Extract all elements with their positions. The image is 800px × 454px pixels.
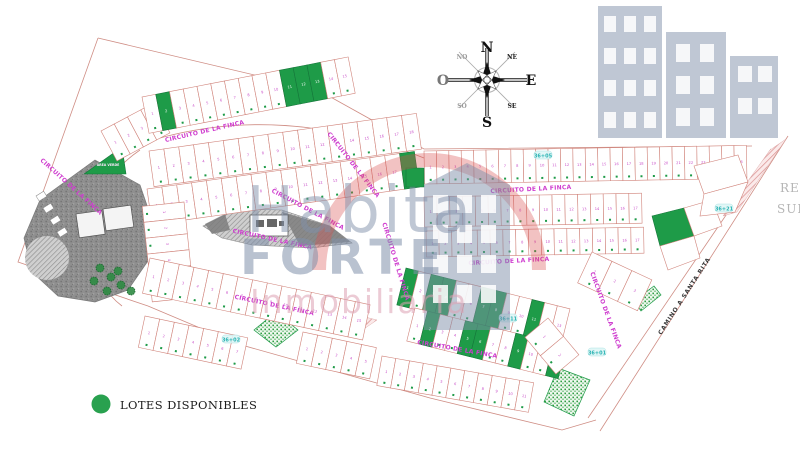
- lot-mark: [637, 248, 639, 250]
- lot-number: 11: [556, 208, 561, 212]
- lot-mark: [583, 219, 585, 221]
- lot-mark: [232, 208, 234, 210]
- lot-mark: [160, 181, 162, 183]
- lot-mark: [616, 176, 618, 178]
- lot-row: 123456789101112131415: [142, 57, 355, 133]
- lot-mark: [438, 391, 440, 393]
- compass-label-no: NO: [457, 54, 468, 61]
- lot-mark: [308, 160, 310, 162]
- lot-number: 21: [676, 161, 681, 165]
- lot-number: 12: [569, 207, 574, 211]
- lot-mark: [189, 353, 191, 355]
- lot-mark: [560, 250, 562, 252]
- lot-number: 1: [162, 211, 166, 214]
- compass-label-n: N: [481, 40, 494, 56]
- lot-number: 13: [582, 207, 587, 211]
- lot-number: 17: [627, 162, 632, 166]
- lot-number: 19: [651, 161, 656, 165]
- lot-mark: [573, 249, 575, 251]
- lot-mark: [541, 177, 543, 179]
- lot-row: 123: [578, 252, 652, 311]
- lot-number: 17: [633, 206, 638, 210]
- lot-mark: [264, 106, 266, 108]
- lot-mark: [303, 360, 305, 362]
- lot-number: 20: [664, 161, 669, 165]
- lot-mark: [516, 177, 518, 179]
- lot-mark: [494, 401, 496, 403]
- watermark-window: [644, 16, 656, 32]
- tree: [90, 277, 98, 285]
- lot-mark: [554, 177, 556, 179]
- lot-mark: [603, 176, 605, 178]
- lot-number: 11: [522, 394, 527, 399]
- watermark-window: [676, 76, 690, 94]
- lot-mark: [545, 220, 547, 222]
- lot-mark: [397, 147, 399, 149]
- lot-number: 14: [595, 207, 600, 211]
- lot-mark: [383, 149, 385, 151]
- lot-mark: [368, 151, 370, 153]
- lot-mark: [596, 219, 598, 221]
- lot-row: 12345: [296, 332, 376, 379]
- lot-mark: [233, 362, 235, 364]
- compass-label-s: S: [482, 115, 492, 131]
- lot-mark: [635, 218, 637, 220]
- lot-number: 3: [165, 243, 169, 246]
- lot-mark: [558, 220, 560, 222]
- compass-label-ne: NE: [507, 54, 517, 61]
- lot-mark: [507, 404, 509, 406]
- lot-mark: [145, 344, 147, 346]
- tree: [107, 273, 115, 281]
- station-label: 36+01: [588, 351, 607, 357]
- lot-mark: [678, 175, 680, 177]
- watermark-window: [758, 98, 772, 114]
- lot-number: 18: [639, 162, 644, 166]
- lot-mark: [585, 249, 587, 251]
- lot-number: 12: [571, 239, 576, 243]
- lot-mark: [149, 290, 151, 292]
- lot-mark: [219, 359, 221, 361]
- lot-mark: [189, 176, 191, 178]
- watermark-window: [481, 195, 496, 213]
- lot-mark: [412, 145, 414, 147]
- lot-mark: [279, 164, 281, 166]
- lot-number: 17: [394, 132, 399, 137]
- lot-mark: [204, 174, 206, 176]
- watermark-window: [700, 44, 714, 62]
- lot-mark: [397, 384, 399, 386]
- lot-mark: [160, 347, 162, 349]
- lot-mark: [690, 174, 692, 176]
- lot-number: 14: [589, 163, 594, 167]
- tree: [96, 264, 104, 272]
- watermark-window: [604, 48, 616, 64]
- lot-mark: [578, 176, 580, 178]
- station-label: 36+21: [715, 207, 734, 213]
- lot-number: 22: [689, 161, 694, 165]
- lot-mark: [466, 396, 468, 398]
- lot-mark: [238, 308, 240, 310]
- watermark-window: [644, 112, 656, 128]
- lot-mark: [353, 153, 355, 155]
- lot-mark: [340, 330, 342, 332]
- lot-mark: [323, 158, 325, 160]
- lot-number: 13: [584, 239, 589, 243]
- lot-mark: [521, 406, 523, 408]
- lot-mark: [521, 250, 523, 252]
- lot-mark: [209, 116, 211, 118]
- lot-mark: [278, 103, 280, 105]
- lot-number: 11: [552, 163, 557, 167]
- lot-mark: [318, 363, 320, 365]
- tree: [117, 281, 125, 289]
- street-label-camino: CAMINO A SANTA RITA: [657, 256, 712, 336]
- lot-mark: [333, 366, 335, 368]
- corner-label: RE SUP.: [777, 181, 800, 216]
- legend: LOTES DISPONIBLES: [92, 395, 258, 414]
- lot-number: 12: [320, 143, 325, 148]
- watermark-window: [644, 48, 656, 64]
- watermark-window: [700, 76, 714, 94]
- lot-mark: [346, 89, 348, 91]
- lot-mark: [154, 127, 156, 129]
- lot-number: 14: [597, 239, 602, 243]
- lot-number: 15: [609, 239, 614, 243]
- lot-number: 13: [577, 163, 582, 167]
- lot-mark: [347, 369, 349, 371]
- lot-number: 16: [614, 162, 619, 166]
- watermark-window: [676, 108, 690, 126]
- lot-number: 16: [622, 238, 627, 242]
- watermark-window: [481, 285, 496, 303]
- lot-mark: [187, 214, 189, 216]
- tree: [114, 267, 122, 275]
- lot-mark: [383, 382, 385, 384]
- compass-label-e: E: [526, 73, 537, 89]
- lot-number: 15: [608, 207, 613, 211]
- lot-mark: [653, 175, 655, 177]
- lot-mark: [293, 162, 295, 164]
- lot-mark: [296, 321, 298, 323]
- lot-mark: [204, 356, 206, 358]
- watermark-window: [676, 44, 690, 62]
- lot-mark: [179, 296, 181, 298]
- lot-mark: [529, 177, 531, 179]
- watermark-window: [738, 66, 752, 82]
- lot-mark: [504, 178, 506, 180]
- watermark-window: [700, 108, 714, 126]
- watermark-window: [624, 48, 636, 64]
- corner-label-line1: RE: [780, 181, 800, 195]
- compass-label-se: SE: [508, 103, 517, 110]
- lot-mark: [223, 305, 225, 307]
- lot-number: 12: [565, 163, 570, 167]
- watermark-tagline: Inmobiliaria: [250, 282, 469, 321]
- lot-mark: [452, 394, 454, 396]
- lot-mark: [223, 114, 225, 116]
- lot-mark: [311, 324, 313, 326]
- lot-mark: [628, 175, 630, 177]
- lot-mark: [249, 168, 251, 170]
- lot-number: 16: [620, 206, 625, 210]
- lot-mark: [611, 249, 613, 251]
- lot-mark: [566, 176, 568, 178]
- lot-number: 11: [305, 145, 310, 150]
- lot-mark: [217, 210, 219, 212]
- watermark-window: [481, 225, 496, 243]
- lot-mark: [250, 108, 252, 110]
- compass-rose: N S E O NE NO SE SO: [437, 40, 536, 131]
- lot-mark: [640, 175, 642, 177]
- tree: [103, 287, 111, 295]
- watermark-window: [624, 16, 636, 32]
- lot-mark: [194, 299, 196, 301]
- lot-number: 10: [540, 163, 545, 167]
- watermark-window: [604, 16, 616, 32]
- lot-mark: [234, 170, 236, 172]
- lot-mark: [164, 293, 166, 295]
- compass-label-o: O: [437, 73, 449, 89]
- watermark-window: [624, 80, 636, 96]
- lot-mark: [362, 372, 364, 374]
- lot-mark: [326, 327, 328, 329]
- lot-number: 15: [602, 162, 607, 166]
- lot-mark: [411, 387, 413, 389]
- green-area-label: AREA VERDE: [97, 163, 120, 167]
- lot-mark: [355, 333, 357, 335]
- watermark-window: [738, 98, 752, 114]
- lot-mark: [338, 155, 340, 157]
- lot-mark: [624, 249, 626, 251]
- corner-label-line2: SUP.: [777, 202, 800, 216]
- lot-number: 17: [635, 238, 640, 242]
- available-lot-marker: [92, 395, 111, 414]
- lot-mark: [591, 176, 593, 178]
- watermark-window: [481, 255, 496, 273]
- lot-number: 2: [164, 227, 168, 230]
- lot-mark: [609, 219, 611, 221]
- lot-mark: [425, 389, 427, 391]
- lot-mark: [333, 92, 335, 94]
- lot-mark: [480, 399, 482, 401]
- lot-number: 10: [544, 208, 549, 212]
- station-label: 36+05: [534, 154, 553, 160]
- watermark-building: [666, 32, 726, 138]
- station-label: 36+02: [222, 338, 241, 344]
- lot-number: 7: [504, 164, 506, 168]
- lot-mark: [547, 250, 549, 252]
- watermark-window: [644, 80, 656, 96]
- watermark-window: [604, 112, 616, 128]
- lot-mark: [665, 175, 667, 177]
- lot-mark: [148, 229, 150, 231]
- compass-hub: [484, 77, 490, 83]
- clubhouse-building: [103, 205, 134, 231]
- lot-mark: [146, 213, 148, 215]
- lot-number: 15: [364, 136, 369, 141]
- lot-mark: [219, 172, 221, 174]
- watermark-window: [758, 66, 772, 82]
- lot-number: 10: [545, 240, 550, 244]
- tree: [127, 287, 135, 295]
- compass-label-so: SO: [457, 103, 467, 110]
- lot-mark: [571, 219, 573, 221]
- site-plan-image: AREA VERDE123412345678910111213141512345…: [0, 0, 800, 454]
- lot-map: AREA VERDE123412345678910111213141512345…: [0, 0, 800, 454]
- watermark-window: [604, 80, 616, 96]
- amenity-hatch-area: [25, 236, 69, 280]
- legend-label: LOTES DISPONIBLES: [120, 398, 257, 412]
- watermark-window: [457, 255, 472, 273]
- lot-mark: [175, 350, 177, 352]
- lot-number: 11: [558, 240, 563, 244]
- lot-mark: [175, 178, 177, 180]
- watermark-window: [624, 112, 636, 128]
- lot-mark: [236, 111, 238, 113]
- watermark-brand-2: FORTE: [240, 230, 449, 286]
- lot-mark: [195, 119, 197, 121]
- lot-mark: [181, 122, 183, 124]
- lot-mark: [622, 219, 624, 221]
- lot-mark: [149, 245, 151, 247]
- lot-mark: [202, 212, 204, 214]
- lot-mark: [598, 249, 600, 251]
- lot-mark: [208, 302, 210, 304]
- lot-mark: [264, 166, 266, 168]
